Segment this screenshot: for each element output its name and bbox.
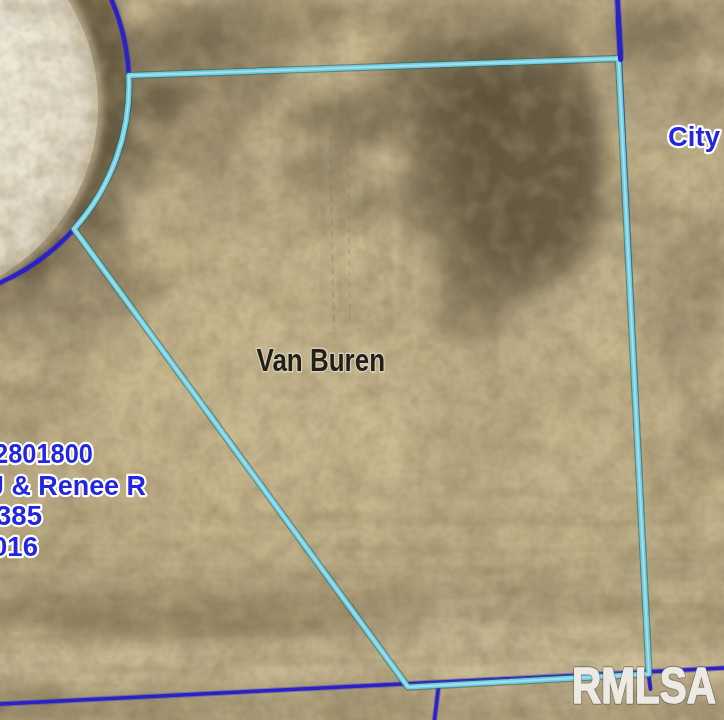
svg-text:RMLSA: RMLSA	[572, 658, 716, 714]
svg-text:Van Buren: Van Buren	[257, 342, 386, 378]
svg-text:2801800: 2801800	[0, 438, 93, 469]
svg-text:City: City	[668, 121, 720, 152]
svg-text:385: 385	[0, 500, 42, 531]
svg-text:J & Renee R: J & Renee R	[0, 470, 146, 501]
svg-text:016: 016	[0, 531, 38, 562]
